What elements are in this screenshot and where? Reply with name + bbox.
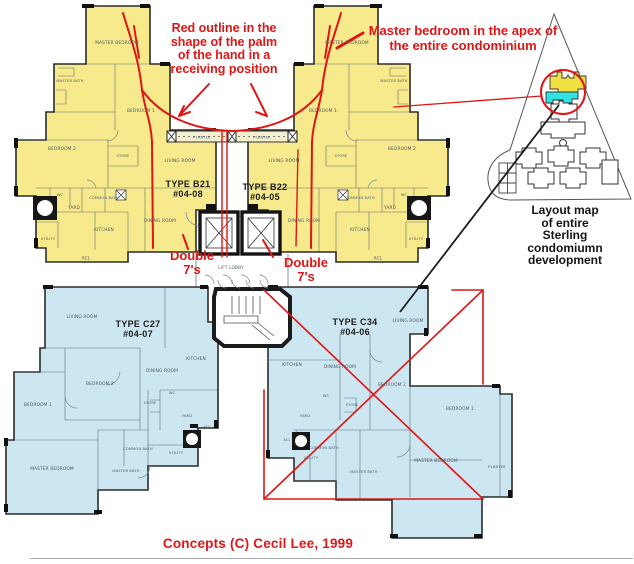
room-label: STORE — [346, 403, 359, 407]
room-label: WC — [323, 394, 330, 398]
room-label: YARD — [300, 414, 310, 418]
planter-label: PLANTER — [253, 136, 271, 140]
room-label: PLANTER — [488, 465, 506, 469]
room-label: BEDROOM 2 — [48, 146, 76, 152]
layout-map-caption: Layout map of entire Sterling condomiumn… — [503, 204, 627, 267]
room-label: MASTER BATH — [56, 79, 83, 83]
ac-ledge-block — [183, 430, 201, 448]
room-label: STORE — [144, 401, 157, 405]
map-link-line — [394, 96, 542, 107]
lift-lobby-label: LIFT LOBBY — [218, 265, 244, 271]
room-label: YARD — [67, 205, 81, 211]
room-label: MASTER BEDROOM — [95, 40, 139, 46]
room-label: COMMON BATH — [309, 446, 339, 450]
type-name: TYPE C34 — [333, 317, 378, 327]
planter-label: PLANTER — [193, 136, 211, 140]
room-label: UTILITY — [41, 237, 56, 241]
room-label: MASTER BEDROOM — [30, 466, 74, 472]
room-label: ACL — [283, 438, 290, 442]
room-label: KITCHEN — [186, 356, 206, 362]
room-label: YARD — [182, 414, 192, 418]
type-name: TYPE B22 — [243, 182, 288, 192]
room-label: MASTER BATH — [112, 469, 139, 473]
room-label: YARD — [383, 205, 397, 211]
double-sevens-left-text: Double 7's — [166, 249, 218, 277]
double-sevens-right-text: Double 7's — [280, 256, 332, 284]
room-label: MASTER BATH — [350, 470, 377, 474]
room-label: ACL — [374, 256, 383, 262]
room-label: COMMON BATH — [89, 196, 119, 200]
unit-type-label-b22: TYPE B22#04-05 — [233, 183, 297, 202]
type-name: TYPE B21 — [166, 179, 211, 189]
room-label: WC — [401, 193, 408, 197]
room-label: BEDROOM 1 — [309, 108, 337, 114]
room-label: BEDROOM 2 — [86, 381, 114, 387]
unit-number: #04-05 — [250, 192, 280, 202]
room-label: BEDROOM 2 — [378, 382, 406, 388]
room-label: DINING ROOM — [144, 218, 176, 224]
ac-ledge-block — [292, 432, 310, 450]
door-arcs — [218, 280, 268, 288]
room-label: ACL — [203, 425, 210, 429]
stair-core — [214, 280, 290, 346]
room-label: UTILITY — [409, 237, 424, 241]
room-label: BEDROOM 1 — [24, 402, 52, 408]
palm-arrow-right — [251, 84, 267, 116]
room-label: COMMON BATH — [123, 447, 153, 451]
unit-number: #04-06 — [340, 327, 370, 337]
room-label: LIVING ROOM — [269, 158, 300, 164]
unit-number: #04-07 — [123, 329, 153, 339]
unit-outer-wall — [268, 287, 512, 538]
unit-type-label-c27: TYPE C27#04-07 — [106, 320, 170, 339]
room-label: KITCHEN — [350, 227, 370, 233]
type-name: TYPE C27 — [116, 319, 161, 329]
palm-annotation-text: Red outline in the shape of the palm of … — [148, 22, 300, 76]
room-label: BEDROOM 1 — [127, 108, 155, 114]
room-label: ACL — [82, 256, 91, 262]
room-label: DINING ROOM — [324, 364, 356, 370]
room-label: MASTER BATH — [380, 79, 407, 83]
room-label: DINING ROOM — [146, 368, 178, 374]
apex-annotation-text: Master bedroom in the apex of the entire… — [352, 24, 574, 53]
room-label: UTILITY — [169, 451, 184, 455]
room-label: BEDROOM 2 — [388, 146, 416, 152]
unit-type-label-b21: TYPE B21#04-08 — [156, 180, 220, 199]
room-label: KITCHEN — [94, 227, 114, 233]
room-label: STORE — [117, 154, 130, 158]
copyright-credit: Concepts (C) Cecil Lee, 1999 — [138, 536, 378, 551]
room-label: BEDROOM 1 — [446, 406, 474, 412]
room-label: LIVING ROOM — [393, 318, 424, 324]
room-label: LIVING ROOM — [67, 314, 98, 320]
room-label: WC — [57, 193, 64, 197]
room-label: COMMON BATH — [345, 196, 375, 200]
planter-strip — [167, 131, 297, 142]
room-label: LIVING ROOM — [165, 158, 196, 164]
room-label: KITCHEN — [282, 362, 302, 368]
annotated-floorplan-image: MASTER BEDROOM MASTER BATH BEDROOM 1 BED… — [0, 0, 634, 564]
unit-number: #04-08 — [173, 189, 203, 199]
unit-c34-plan — [266, 285, 512, 538]
room-label: STORE — [335, 154, 348, 158]
unit-type-label-c34: TYPE C34#04-06 — [323, 318, 387, 337]
room-label: DINING ROOM — [288, 218, 320, 224]
palm-arrow-left — [179, 84, 209, 116]
room-label: WC — [169, 391, 176, 395]
room-label: UTILITY — [304, 456, 319, 460]
room-label: MASTER BEDROOM — [414, 458, 458, 464]
